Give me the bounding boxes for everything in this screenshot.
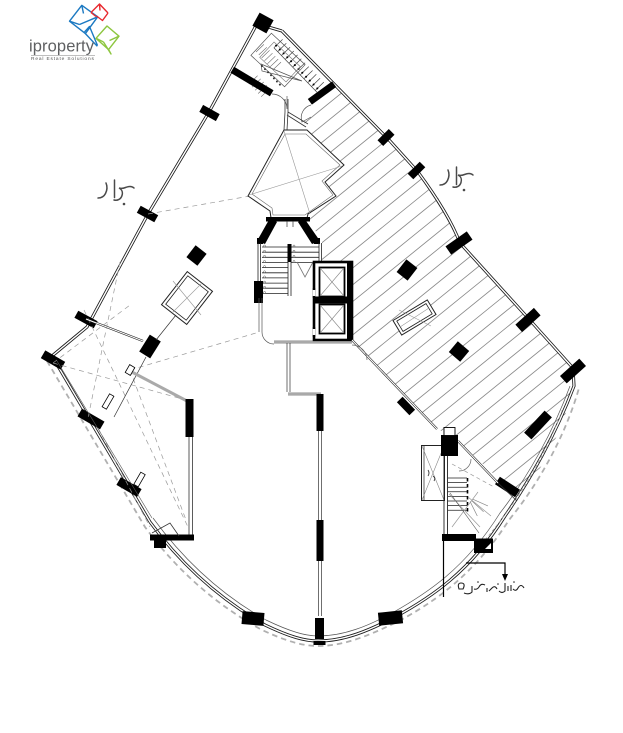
svg-text:Real Estate Solutions: Real Estate Solutions [31,56,95,62]
svg-text:iproperty: iproperty [29,38,95,56]
